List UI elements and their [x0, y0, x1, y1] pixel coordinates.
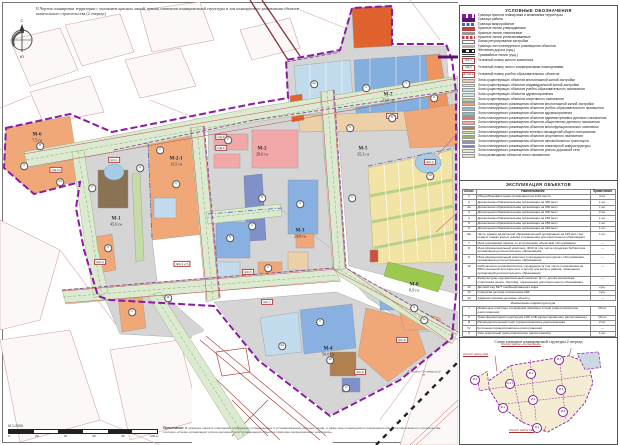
object-number-marker: 1	[316, 318, 324, 326]
legend-swatch	[462, 36, 475, 40]
inset-callout-bottom: Жилой район №3	[509, 428, 534, 432]
legend-swatch	[462, 107, 475, 111]
object-number-marker: 3	[402, 80, 410, 88]
object-number-marker: 2а	[278, 342, 286, 350]
legend-swatch	[462, 32, 475, 36]
object-number-marker: 10	[426, 172, 434, 180]
legend-swatch	[462, 126, 475, 130]
drawing-title: II.Чертеж планировки территории с указан…	[36, 6, 308, 16]
explication-table: Обозн. Наименование Примечание 1Общеобра…	[462, 189, 616, 339]
legend-item: ЖК-1 Условный номер жилого комплекса	[462, 58, 615, 64]
legend-item: Зона размещения объектов иного назначени…	[462, 154, 615, 158]
inset-map: М-6 М-2-1 М-2 М-7 М-5 М-1 М-3 М-8 М-4	[461, 344, 617, 434]
legend-swatch	[462, 18, 475, 22]
district-label: М-324,8 га	[294, 229, 306, 240]
complex-tag: ЖК-8	[396, 337, 408, 343]
complex-tag: ЖК-4 и 5	[174, 261, 191, 267]
object-number-marker: 5	[226, 234, 234, 242]
legend-swatch	[462, 84, 475, 88]
legend-swatch	[462, 116, 475, 120]
object-number-marker: 2а	[310, 80, 318, 88]
complex-tag: ЖК-8	[354, 369, 366, 375]
map-area: С Ю II.Чертеж планировки территории с ук…	[0, 0, 458, 445]
legend-item-label: Зона планируемого размещения объектов зд…	[478, 112, 572, 116]
complex-tag: ЖК-1	[108, 157, 120, 163]
district-label: М-145,6 га	[110, 217, 122, 228]
inset-map-svg	[461, 344, 617, 434]
object-number-marker: 2	[156, 146, 164, 154]
legend-swatch: ОД-2	[462, 65, 475, 71]
object-number-marker: 11	[164, 294, 172, 302]
legend-item: Зона существующих объектов спортивного н…	[462, 98, 615, 102]
legend-swatch	[462, 154, 475, 158]
object-number-marker: 1	[348, 194, 356, 202]
inset-callout-top: Жилой район «Солнечный»	[501, 342, 541, 346]
inset-unit-marker: М-7	[554, 355, 564, 365]
legend-swatch	[462, 112, 475, 116]
complex-tag: ЖК-7	[261, 299, 273, 305]
scale-bar: М 1:2000 020 4060 80100 м	[8, 424, 158, 438]
legend-swatch	[462, 27, 475, 31]
object-number-marker: 9	[346, 124, 354, 132]
object-number-marker: 6	[172, 180, 180, 188]
planning-drawing-sheet: С Ю II.Чертеж планировки территории с ук…	[0, 0, 620, 445]
inset-unit-marker: М-2-1	[505, 379, 515, 389]
legend-swatch: Д-1 Ш-1	[462, 72, 475, 78]
object-number-marker: 4	[296, 200, 304, 208]
inset-diagram-box: Схема элементов планировочной структуры …	[459, 337, 618, 445]
legend-swatch	[462, 14, 475, 18]
legend-swatch	[462, 140, 475, 144]
legend-item-label: Условный номер учебно-образовательных об…	[478, 73, 559, 77]
scale-label: М 1:2000	[8, 424, 23, 428]
object-number-marker: 8	[258, 194, 266, 202]
object-number-marker: 1	[362, 84, 370, 92]
legend-item-label: Зона планируемого размещения объектов ав…	[478, 140, 589, 144]
district-label: М-228,6 га	[256, 147, 268, 158]
legend-item-label: Зона размещения объектов иного назначени…	[478, 154, 550, 158]
district-label: М-2-111,5 га	[169, 157, 182, 168]
inset-unit-marker: М-6	[470, 375, 480, 385]
inset-unit-marker: М-5	[556, 385, 566, 395]
object-number-marker: 3	[20, 162, 28, 170]
street-name-label: Гарнизон Октябрьский пл.	[407, 371, 441, 378]
legend-swatch	[462, 79, 475, 83]
compass-south-letter: Ю	[20, 54, 24, 59]
legend-item-label: Условный номер зоны с коммерческими поме…	[478, 66, 563, 70]
table-row: 8Многофункциональный комплекс, ФОК (в то…	[462, 246, 615, 255]
legend-swatch	[462, 98, 475, 102]
legend-swatch	[462, 49, 475, 53]
explication-table-box: ЭКСПЛИКАЦИЯ ОБЪЕКТОВ Обозн. Наименование…	[459, 180, 618, 338]
table-row: 10Амбулаторно-поликлиническое учреждение…	[462, 264, 615, 276]
object-number-marker: 4	[136, 164, 144, 172]
legend-box: УСЛОВНЫЕ ОБОЗНАЧЕНИЯ Граница проекта пла…	[459, 5, 618, 183]
object-number-marker: 1	[248, 222, 256, 230]
legend-swatch	[462, 54, 475, 58]
inset-unit-marker: М-2	[526, 369, 536, 379]
legend-swatch	[462, 23, 475, 27]
object-number-marker: 9	[342, 384, 350, 392]
object-number-marker: 14	[56, 178, 64, 186]
object-number-marker: 8	[36, 142, 44, 150]
legend-item-label: Зона планируемого размещения объектов мн…	[478, 126, 599, 130]
legend-title: УСЛОВНЫЕ ОБОЗНАЧЕНИЯ	[462, 8, 615, 13]
district-label: М-722,5 га	[382, 93, 394, 104]
legend-swatch	[462, 121, 475, 125]
object-number-marker: 2	[264, 264, 272, 272]
legend-swatch	[462, 93, 475, 97]
complex-tag: ОД-10	[49, 167, 62, 173]
object-number-marker: 12	[420, 316, 428, 324]
legend-swatch	[462, 131, 475, 135]
legend-item-label: Трамвайные линии (сущ.)	[478, 54, 518, 58]
object-number-marker: 2	[224, 136, 232, 144]
complex-tag: ЖК-6	[424, 159, 436, 165]
complex-tag: ЖК-3	[94, 259, 106, 265]
object-number-marker: 3	[410, 304, 418, 312]
inset-unit-marker: М-8	[558, 407, 568, 417]
table-row: IЛокальные очистные сооружения ливневых …	[462, 306, 615, 315]
legend-item: ОД-2 Условный номер зоны с коммерческими…	[462, 65, 615, 71]
object-number-marker: 6	[430, 94, 438, 102]
district-label: М-88,9 га	[409, 283, 419, 294]
legend-swatch	[462, 135, 475, 139]
complex-tag: ОД-6	[215, 145, 227, 151]
object-number-marker: 3	[104, 244, 112, 252]
inset-unit-marker: М-3	[528, 395, 538, 405]
legend-swatch	[462, 145, 475, 149]
legend-item: Зона планируемого размещения объектов зд…	[462, 112, 615, 116]
complex-tag: ЖК-5	[242, 269, 254, 275]
city-plan-map: С Ю	[0, 0, 458, 445]
legend-item: Трамвайные линии (сущ.)	[462, 54, 615, 58]
object-number-marker: 5	[388, 114, 396, 122]
table-row: 6аЧасть здания дошкольной образовательно…	[462, 232, 615, 241]
table-row: 9Многофункциональный комплекс (учреждени…	[462, 255, 615, 264]
legend-swatch	[462, 149, 475, 153]
inset-callout-left: Жилой район №2	[463, 352, 488, 356]
compass-north-letter: С	[21, 18, 24, 23]
district-label: М-535,3 га	[357, 147, 369, 158]
inset-unit-marker: М-1	[498, 403, 508, 413]
object-number-marker: 1	[128, 308, 136, 316]
legend-swatch	[462, 102, 475, 106]
side-panel: УСЛОВНЫЕ ОБОЗНАЧЕНИЯ Граница проекта пла…	[458, 0, 620, 445]
legend-item-label: Зона существующих объектов спортивного н…	[478, 98, 564, 102]
legend-item-label: Условный номер жилого комплекса	[478, 59, 533, 63]
object-number-marker: 7	[88, 184, 96, 192]
legend-swatch	[462, 40, 475, 44]
legend-swatch	[462, 88, 475, 92]
legend-swatch: ЖК-1	[462, 58, 475, 64]
scale-bar-segments	[8, 429, 158, 434]
object-number-marker: 13	[326, 356, 334, 364]
legend-swatch	[462, 45, 475, 49]
note-text: Примечание: В границах проекта планировк…	[163, 426, 453, 435]
table-title: ЭКСПЛИКАЦИЯ ОБЪЕКТОВ	[462, 182, 616, 187]
table-row: 11Физкультурно-оздоровительный комплекс …	[462, 276, 615, 285]
